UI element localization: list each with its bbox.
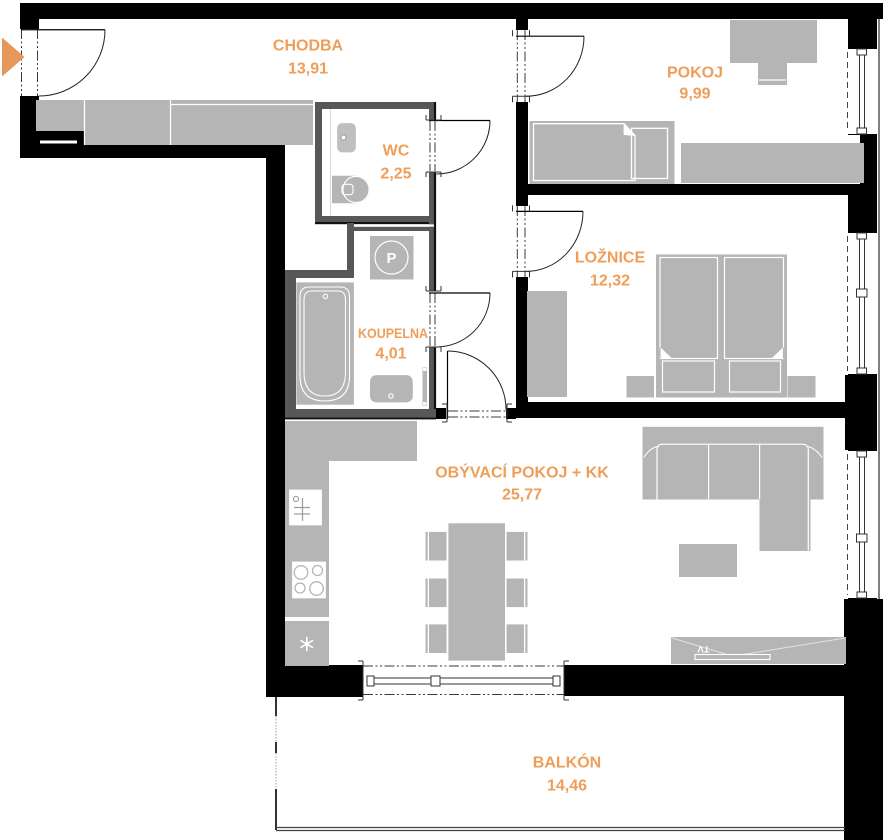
svg-text:TV: TV <box>697 643 710 654</box>
svg-text:WC: WC <box>383 143 410 160</box>
svg-text:KOUPELNA: KOUPELNA <box>358 325 428 341</box>
svg-text:BALKÓN: BALKÓN <box>533 753 601 772</box>
svg-text:25,77: 25,77 <box>502 487 542 504</box>
svg-text:CHODBA: CHODBA <box>273 38 344 55</box>
svg-text:OBÝVACÍ POKOJ + KK: OBÝVACÍ POKOJ + KK <box>435 463 609 482</box>
svg-text:13,91: 13,91 <box>288 61 328 78</box>
svg-text:2,25: 2,25 <box>380 166 411 183</box>
svg-text:14,46: 14,46 <box>547 778 587 795</box>
svg-text:4,01: 4,01 <box>375 346 406 363</box>
svg-text:LOŽNICE: LOŽNICE <box>575 248 646 267</box>
svg-text:P: P <box>386 250 396 267</box>
svg-text:9,99: 9,99 <box>679 86 710 103</box>
svg-text:12,32: 12,32 <box>590 273 630 290</box>
svg-text:POKOJ: POKOJ <box>667 65 723 82</box>
